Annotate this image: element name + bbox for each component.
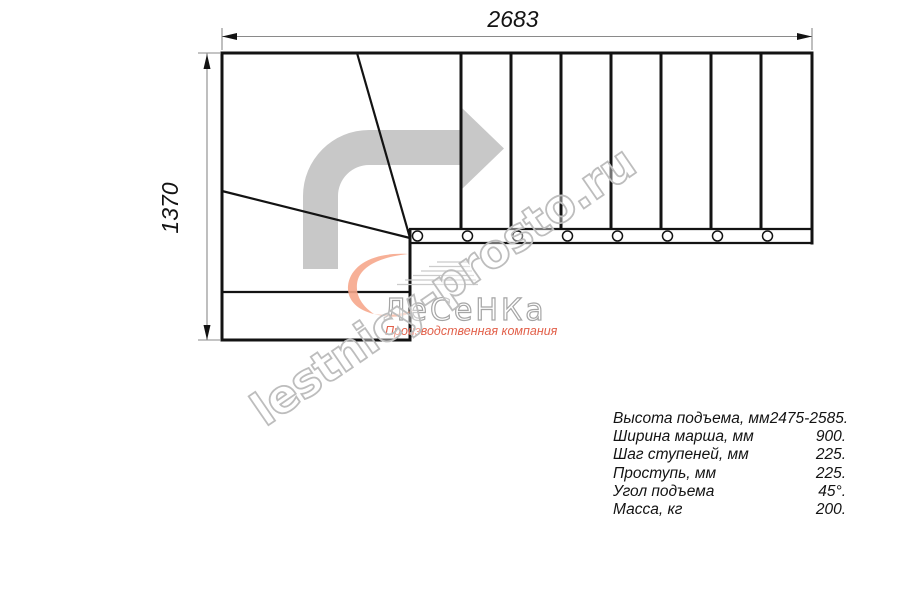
spec-row-height: Высота подъема, мм 2475-2585. [613,410,846,428]
dimension-width-label: 2683 [486,6,538,32]
spec-value: 45°. [818,483,846,501]
baluster-circle-icon [613,231,623,241]
baluster-circle-icon [413,231,423,241]
baluster-circle-icon [663,231,673,241]
spec-value: 225. [816,446,846,464]
spec-label: Проступь, мм [613,465,716,483]
spec-row-flight-width: Ширина марша, мм 900. [613,428,846,446]
spec-value: 900. [816,428,846,446]
spec-row-step-pitch: Шаг ступеней, мм 225. [613,446,846,464]
spec-label: Масса, кг [613,501,682,519]
spec-row-angle: Угол подъема 45°. [613,483,846,501]
spec-row-tread: Проступь, мм 225. [613,465,846,483]
spec-row-mass: Масса, кг 200. [613,501,846,519]
spec-label: Высота подъема, мм [613,410,770,428]
spec-label: Угол подъема [613,483,714,501]
spec-value: 2475-2585. [770,410,848,428]
spec-value: 200. [816,501,846,519]
baluster-circle-icon [763,231,773,241]
watermark-text: lestnicy-prosto.ru [241,135,645,436]
spec-value: 225. [816,465,846,483]
specs-table: Высота подъема, мм 2475-2585. Ширина мар… [613,410,846,519]
spec-label: Шаг ступеней, мм [613,446,749,464]
stair-drawing-page: 2683 1370 ЛеСеНКа Производственная компа… [0,0,900,600]
dimension-height-label: 1370 [157,182,183,233]
spec-label: Ширина марша, мм [613,428,754,446]
baluster-circle-icon [713,231,723,241]
